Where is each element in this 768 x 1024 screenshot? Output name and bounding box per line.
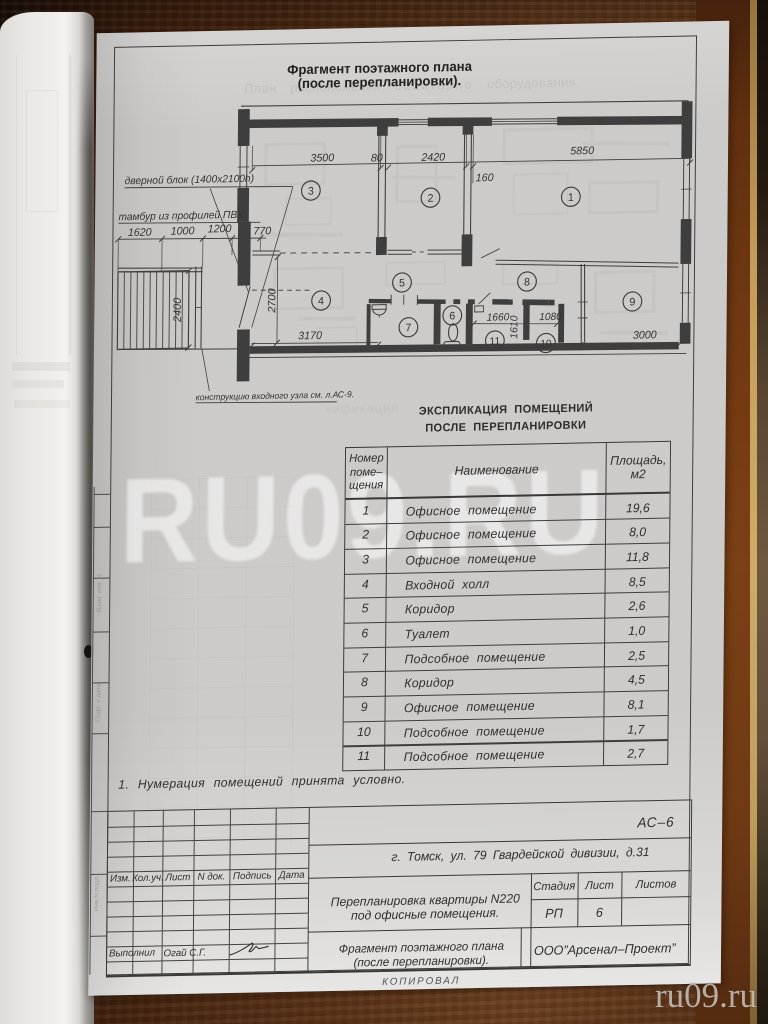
svg-text:2420: 2420 xyxy=(420,151,445,164)
svg-text:2400: 2400 xyxy=(172,298,184,324)
svg-text:1080: 1080 xyxy=(539,312,562,324)
svg-text:конструкцию входного узла см.: конструкцию входного узла см. л.АС-9. xyxy=(196,389,354,402)
svg-text:5: 5 xyxy=(399,277,405,289)
svg-text:1000: 1000 xyxy=(171,225,195,238)
svg-text:1660: 1660 xyxy=(487,312,510,324)
svg-text:3: 3 xyxy=(308,185,314,197)
svg-text:дверной блок (1400х2100h): дверной блок (1400х2100h) xyxy=(125,173,255,188)
svg-text:10: 10 xyxy=(540,339,552,350)
svg-text:6: 6 xyxy=(449,310,455,322)
svg-text:11: 11 xyxy=(490,336,501,347)
svg-text:1: 1 xyxy=(568,192,574,204)
svg-text:770: 770 xyxy=(253,225,271,237)
svg-text:9: 9 xyxy=(629,296,635,308)
svg-text:тамбур из профилей ПВХ: тамбур из профилей ПВХ xyxy=(118,209,244,224)
svg-text:1620: 1620 xyxy=(128,226,152,239)
svg-text:7: 7 xyxy=(405,322,411,334)
svg-text:3000: 3000 xyxy=(633,329,657,342)
svg-text:2700: 2700 xyxy=(266,288,278,314)
svg-text:80: 80 xyxy=(371,152,383,164)
svg-text:4: 4 xyxy=(318,295,324,307)
svg-text:1200: 1200 xyxy=(208,223,232,236)
svg-text:3500: 3500 xyxy=(310,152,334,165)
svg-text:8: 8 xyxy=(524,276,530,288)
svg-text:2: 2 xyxy=(427,193,433,205)
svg-text:3170: 3170 xyxy=(298,330,322,343)
svg-text:1610: 1610 xyxy=(509,315,520,339)
svg-text:160: 160 xyxy=(476,172,494,184)
svg-text:5850: 5850 xyxy=(570,145,594,158)
